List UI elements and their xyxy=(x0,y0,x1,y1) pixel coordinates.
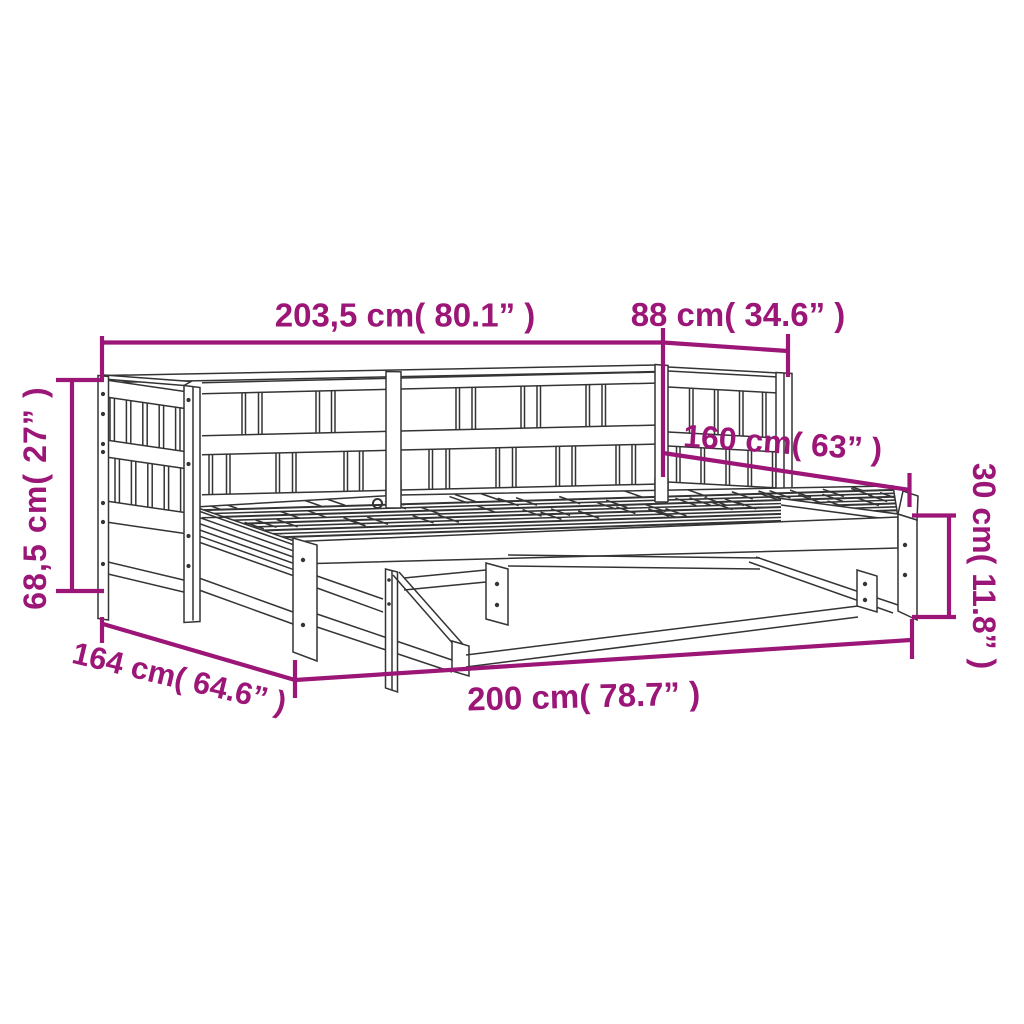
svg-text:30 cm( 11.8” ): 30 cm( 11.8” ) xyxy=(966,463,1002,669)
svg-text:88 cm( 34.6” ): 88 cm( 34.6” ) xyxy=(631,296,846,333)
svg-text:200 cm( 78.7” ): 200 cm( 78.7” ) xyxy=(467,674,701,717)
svg-text:203,5 cm( 80.1” ): 203,5 cm( 80.1” ) xyxy=(275,297,536,334)
svg-text:68,5 cm( 27” ): 68,5 cm( 27” ) xyxy=(17,386,53,610)
